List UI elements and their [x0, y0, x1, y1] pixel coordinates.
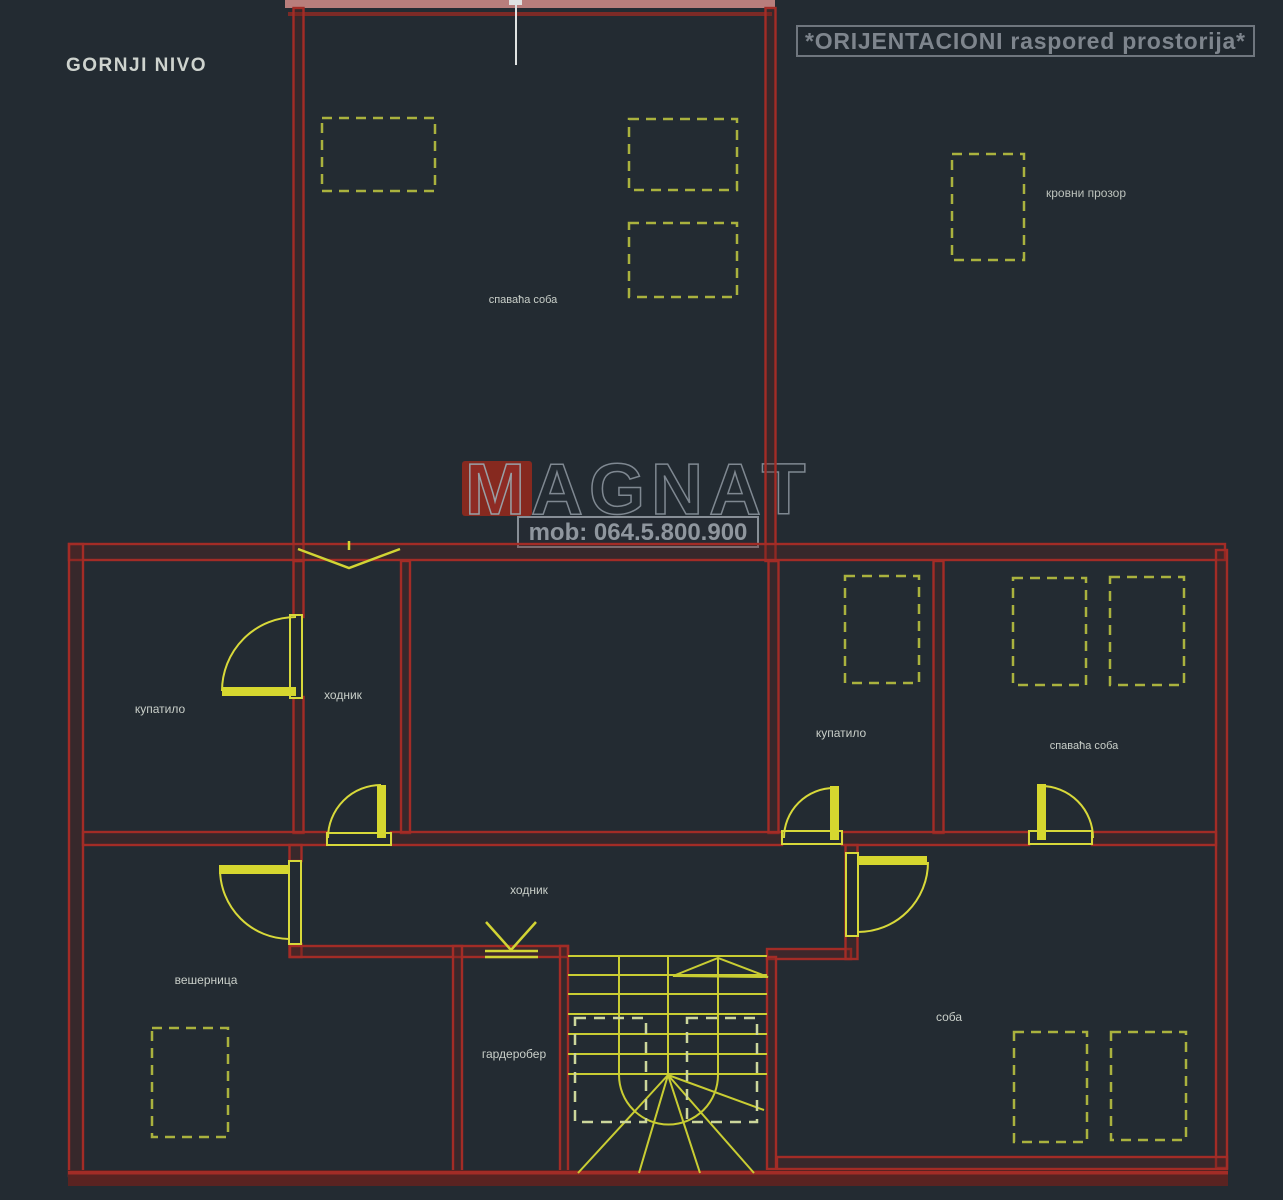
svg-text:вешерница: вешерница — [175, 973, 238, 987]
svg-text:купатило: купатило — [816, 726, 867, 740]
svg-text:кровни прозор: кровни прозор — [1046, 186, 1126, 200]
svg-text:*ORIJENTACIONI raspored prosto: *ORIJENTACIONI raspored prostorija* — [805, 28, 1245, 54]
svg-text:спаваћа соба: спаваћа соба — [1050, 740, 1119, 752]
svg-text:ходник: ходник — [510, 883, 549, 897]
svg-text:спаваћа соба: спаваћа соба — [489, 294, 558, 306]
svg-text:гардеробер: гардеробер — [482, 1047, 547, 1061]
svg-text:mob: 064.5.800.900: mob: 064.5.800.900 — [529, 519, 748, 546]
svg-text:ходник: ходник — [324, 688, 363, 702]
svg-text:купатило: купатило — [135, 702, 186, 716]
svg-text:GORNJI NIVO: GORNJI NIVO — [66, 55, 207, 76]
svg-text:соба: соба — [936, 1010, 962, 1024]
